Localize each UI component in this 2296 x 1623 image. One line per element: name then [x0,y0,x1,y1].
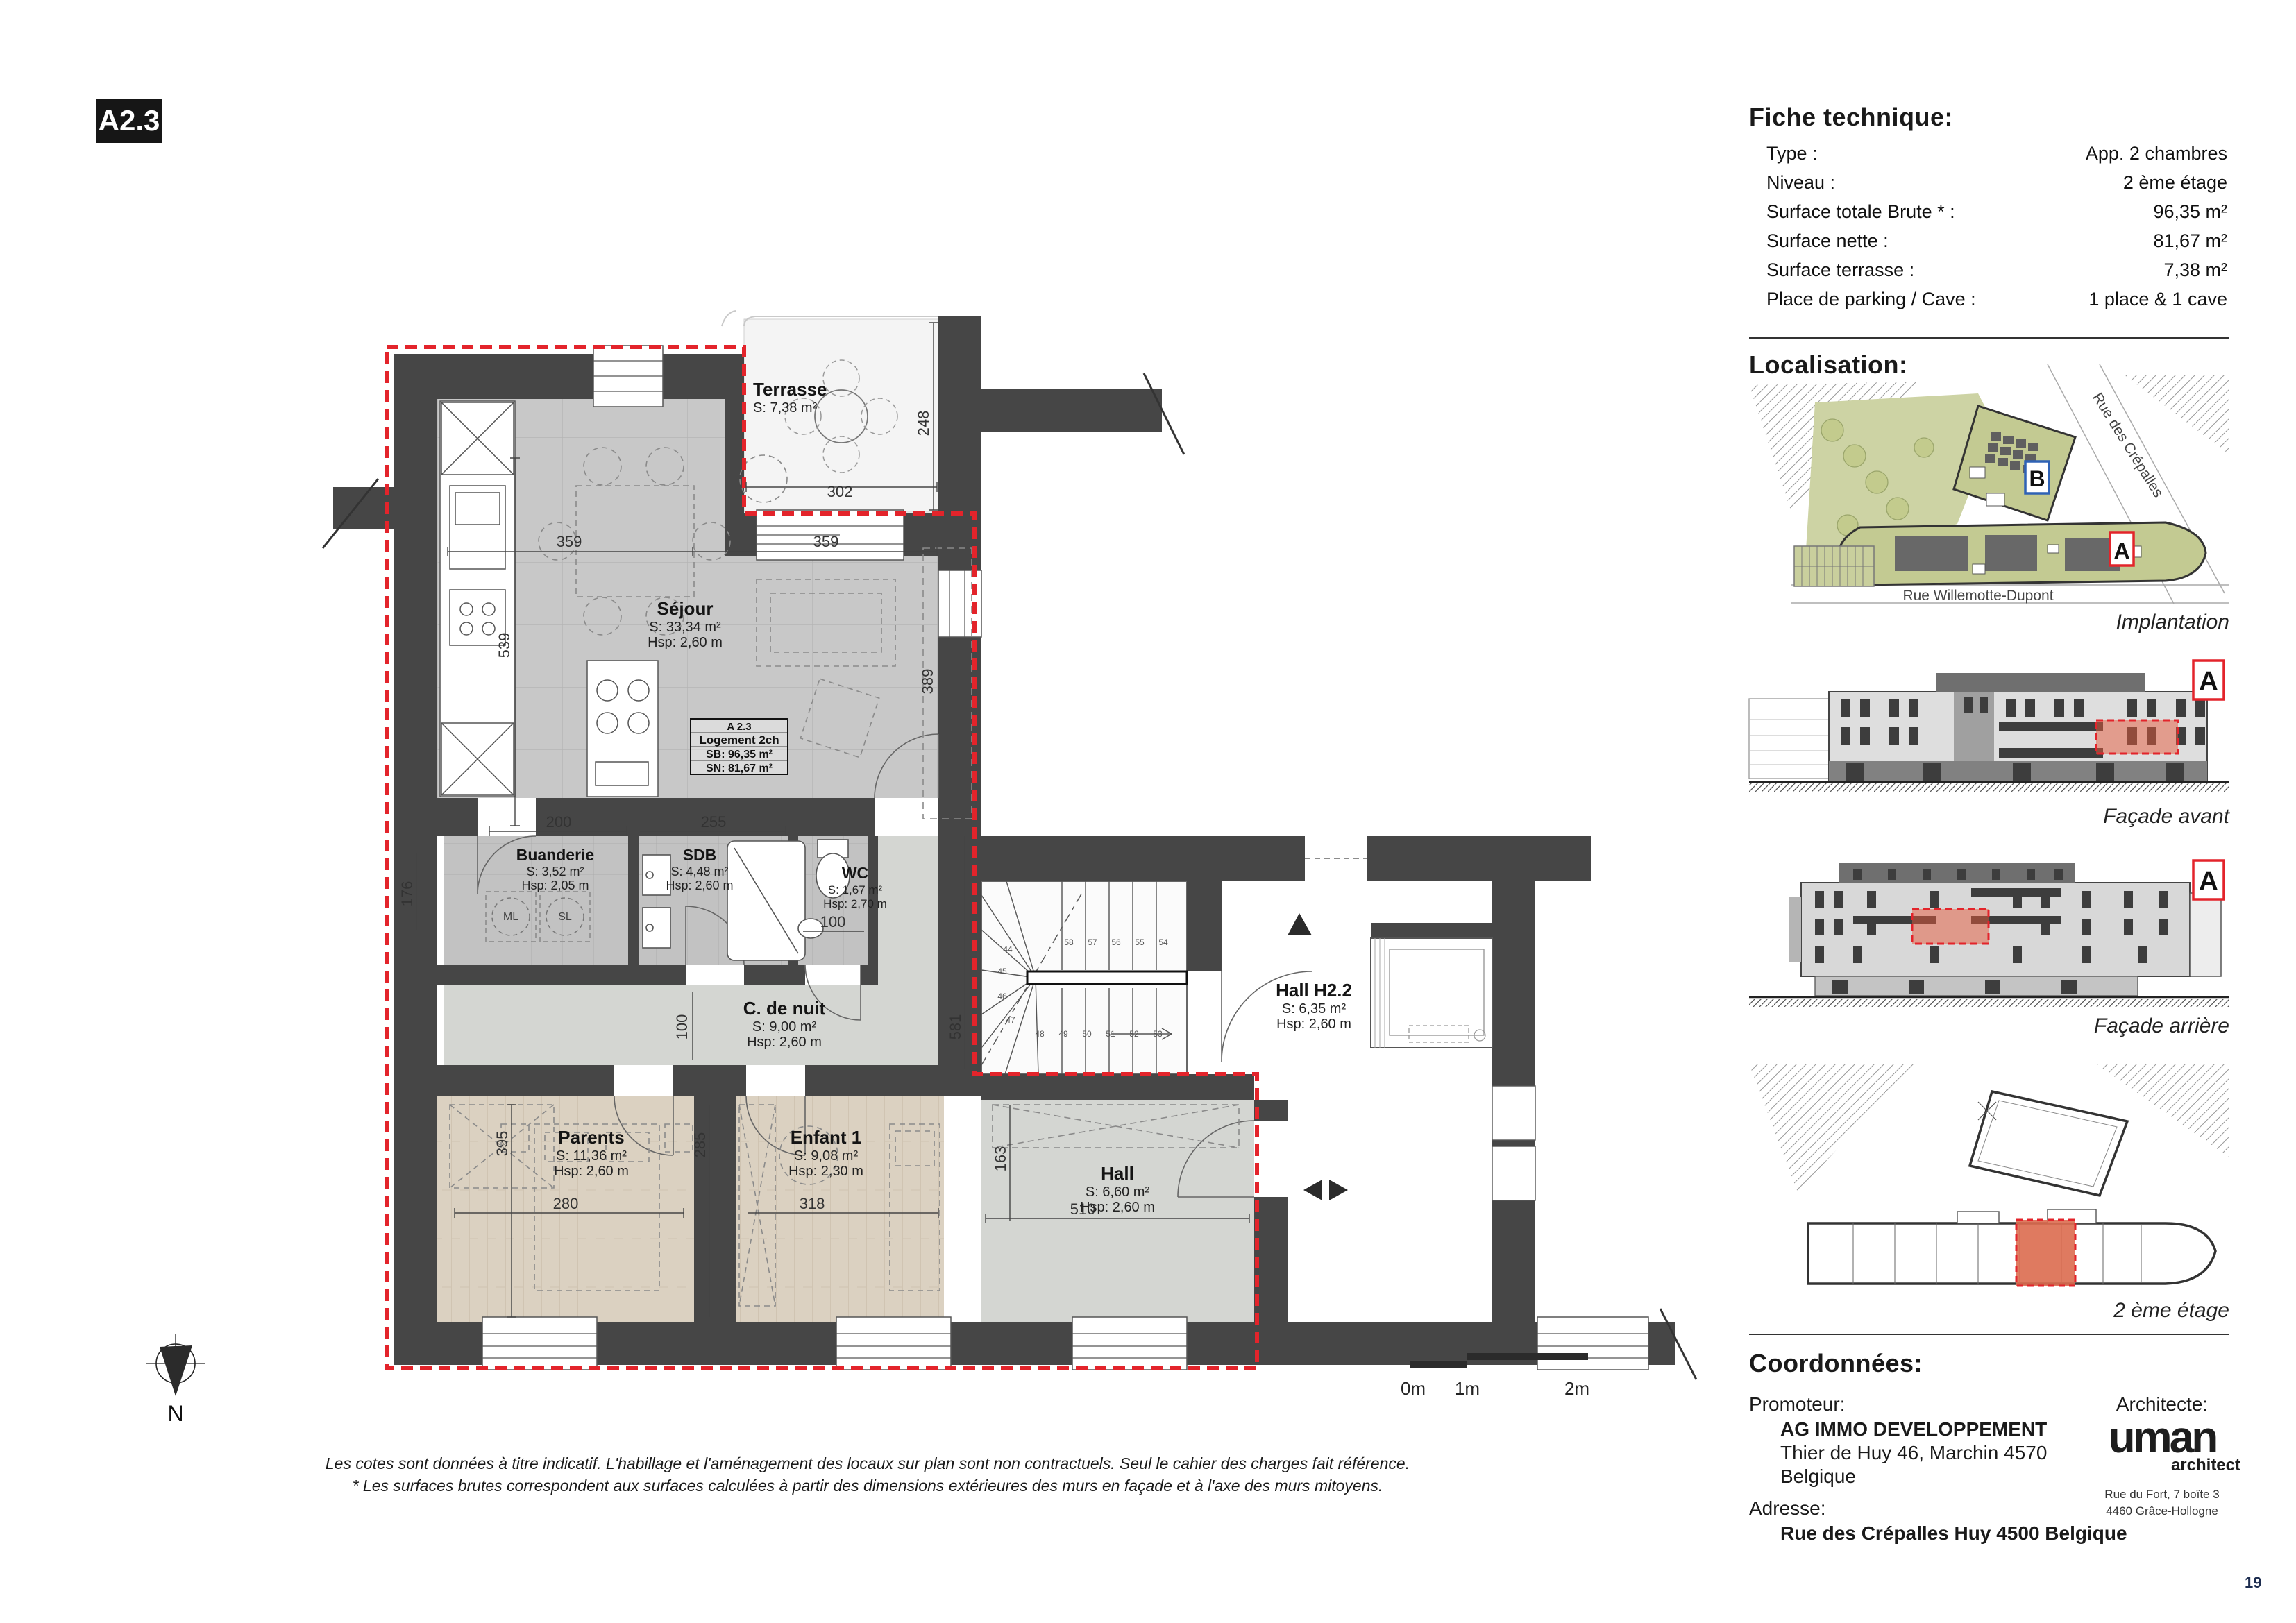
svg-text:S: 4,48 m²: S: 4,48 m² [670,865,728,878]
fiche-title: Fiche technique: [1749,103,1953,132]
promoteur-name: AG IMMO DEVELOPPEMENT [1780,1418,2047,1441]
facade-arriere: A [1749,860,2229,1007]
marker-b: B [2029,466,2045,491]
room-wc: WC [842,864,868,882]
stair-num: 56 [1111,937,1121,947]
svg-text:285: 285 [691,1132,709,1158]
fiche-table: Type :App. 2 chambres Niveau :2 ème étag… [1766,139,2227,314]
svg-text:0m: 0m [1401,1378,1426,1399]
up-arrow-icon [1288,913,1312,935]
north-arrow-icon: N [146,1334,205,1426]
svg-text:Hsp: 2,60 m: Hsp: 2,60 m [554,1164,629,1179]
marker-a: A [2113,538,2129,563]
stair-num: 48 [1035,1029,1045,1039]
fiche-row: Niveau :2 ème étage [1766,168,2227,197]
adresse-value: Rue des Crépalles Huy 4500 Belgique [1780,1522,2127,1545]
svg-text:S: 1,67 m²: S: 1,67 m² [828,883,883,897]
panel-divider [1698,97,1698,1533]
svg-text:N: N [167,1401,183,1426]
highlight-avant [2096,720,2178,754]
footnote-line1: Les cotes sont données à titre indicatif… [236,1454,1499,1473]
architecte-addr1: Rue du Fort, 7 boîte 3 [2075,1486,2249,1503]
svg-text:Hsp: 2,60 m: Hsp: 2,60 m [1276,1017,1351,1032]
svg-text:S: 3,52 m²: S: 3,52 m² [526,865,584,878]
adresse-label: Adresse: [1749,1497,1826,1520]
street-label-bottom: Rue Willemotte-Dupont [1902,588,2053,604]
room-parents: Parents [558,1127,624,1148]
svg-text:100: 100 [673,1014,691,1040]
svg-text:389: 389 [919,669,936,695]
facade-arriere-caption: Façade arrière [1749,1014,2229,1038]
room-enfant: Enfant 1 [791,1127,862,1148]
page-number: 19 [2245,1574,2261,1592]
room-terrasse: Terrasse [753,379,827,400]
svg-text:S: 11,36 m²: S: 11,36 m² [556,1148,627,1164]
stair-num: 58 [1064,937,1074,947]
sheet-code-badge: A2.3 [96,99,162,143]
svg-text:S: 7,38 m²: S: 7,38 m² [753,400,818,416]
stair-num: 53 [1153,1029,1163,1039]
svg-text:SB: 96,35 m²: SB: 96,35 m² [706,749,773,760]
floor-plan: ML SL [323,311,1696,1379]
svg-text:S: 6,60 m²: S: 6,60 m² [1086,1184,1150,1200]
facade-arriere-marker: A [2199,867,2218,896]
room-cdenuit: C. de nuit [743,998,826,1019]
svg-text:Hsp: 2,70 m: Hsp: 2,70 m [823,897,887,910]
svg-text:SN: 81,67 m²: SN: 81,67 m² [706,763,773,774]
implantation-map: B A Rue des Crépalles Rue Willemotte-Dup… [1749,364,2229,604]
stair-num: 57 [1088,937,1097,947]
svg-text:359: 359 [557,533,582,550]
room-sdb: SDB [683,846,717,864]
etage-mini-plan [1749,1064,2229,1286]
svg-text:A 2.3: A 2.3 [727,721,751,733]
stair-num: 45 [997,967,1007,976]
svg-text:S: 9,00 m²: S: 9,00 m² [752,1019,817,1035]
stair-num: 50 [1082,1029,1092,1039]
stair-num: 44 [1003,944,1013,954]
promoteur-addr1: Thier de Huy 46, Marchin 4570 [1780,1442,2047,1464]
svg-text:Hsp: 2,60 m: Hsp: 2,60 m [747,1035,822,1050]
svg-text:100: 100 [820,913,846,931]
svg-text:200: 200 [546,813,572,831]
rule-1 [1749,337,2229,339]
svg-text:2m: 2m [1564,1378,1589,1399]
fiche-row: Type :App. 2 chambres [1766,139,2227,168]
highlight-arriere [1912,909,1989,944]
highlight-etage [2016,1220,2075,1286]
room-sejour: Séjour [657,598,714,619]
svg-text:Hsp: 2,60 m: Hsp: 2,60 m [1080,1200,1155,1215]
etage-caption: 2 ème étage [1749,1299,2229,1323]
svg-text:255: 255 [701,813,727,831]
rule-2 [1749,1334,2229,1335]
svg-text:Hsp: 2,60 m: Hsp: 2,60 m [648,635,723,650]
svg-text:1m: 1m [1455,1378,1480,1399]
stair-num: 55 [1135,937,1145,947]
svg-text:S: 33,34 m²: S: 33,34 m² [649,620,721,635]
svg-text:280: 280 [553,1195,579,1212]
svg-text:176: 176 [398,881,416,907]
stair-num: 46 [997,992,1007,1001]
localisation-title: Localisation: [1749,350,1908,380]
uman-logo: uman [2075,1411,2249,1463]
svg-text:Hsp: 2,05 m: Hsp: 2,05 m [521,878,589,892]
svg-text:359: 359 [813,533,839,550]
svg-text:S: 6,35 m²: S: 6,35 m² [1282,1001,1347,1017]
stair-num: 52 [1129,1029,1139,1039]
uman-logo-sub: architect [2075,1456,2240,1475]
svg-text:318: 318 [800,1195,825,1212]
stair-num: 49 [1058,1029,1068,1039]
elevator [1371,938,1492,1048]
facade-avant-caption: Façade avant [1749,805,2229,829]
street-label-diagonal: Rue des Crépalles [2089,390,2166,500]
room-hall-h22: Hall H2.2 [1276,980,1352,1001]
coordonnees-title: Coordonnées: [1749,1349,1923,1378]
fiche-row: Surface totale Brute * :96,35 m² [1766,197,2227,226]
dryer-label: SL [558,911,572,923]
promoteur-label: Promoteur: [1749,1393,1846,1416]
facade-avant-marker: A [2199,667,2218,696]
elevator-arrows-icon [1303,1180,1348,1200]
promoteur-addr2: Belgique [1780,1465,1856,1488]
stair-num: 47 [1006,1015,1015,1025]
svg-text:S: 9,08 m²: S: 9,08 m² [794,1148,859,1164]
implantation-caption: Implantation [1749,611,2229,634]
architecte-addr2: 4460 Grâce-Hollogne [2075,1503,2249,1520]
svg-text:Logement 2ch: Logement 2ch [699,733,779,747]
room-buanderie: Buanderie [516,846,594,864]
room-hall: Hall [1101,1163,1134,1184]
footnote-line2: * Les surfaces brutes correspondent aux … [236,1477,1499,1495]
drawing-sheet: ML SL [0,0,2296,1623]
svg-text:302: 302 [827,483,853,500]
fiche-row: Surface terrasse :7,38 m² [1766,255,2227,284]
fiche-row: Place de parking / Cave :1 place & 1 cav… [1766,284,2227,314]
svg-text:395: 395 [493,1131,511,1157]
facade-avant: A [1749,661,2229,792]
washer-label: ML [503,911,518,923]
stair-num: 51 [1106,1029,1115,1039]
stair-num: 54 [1158,937,1168,947]
svg-text:Hsp: 2,60 m: Hsp: 2,60 m [666,878,733,892]
svg-text:163: 163 [992,1146,1009,1172]
svg-text:581: 581 [947,1014,964,1040]
unit-info-box: A 2.3 Logement 2ch SB: 96,35 m² SN: 81,6… [691,719,788,774]
svg-text:539: 539 [496,633,513,658]
svg-text:248: 248 [915,411,932,436]
fiche-row: Surface nette :81,67 m² [1766,226,2227,255]
svg-text:Hsp: 2,30 m: Hsp: 2,30 m [788,1164,863,1179]
